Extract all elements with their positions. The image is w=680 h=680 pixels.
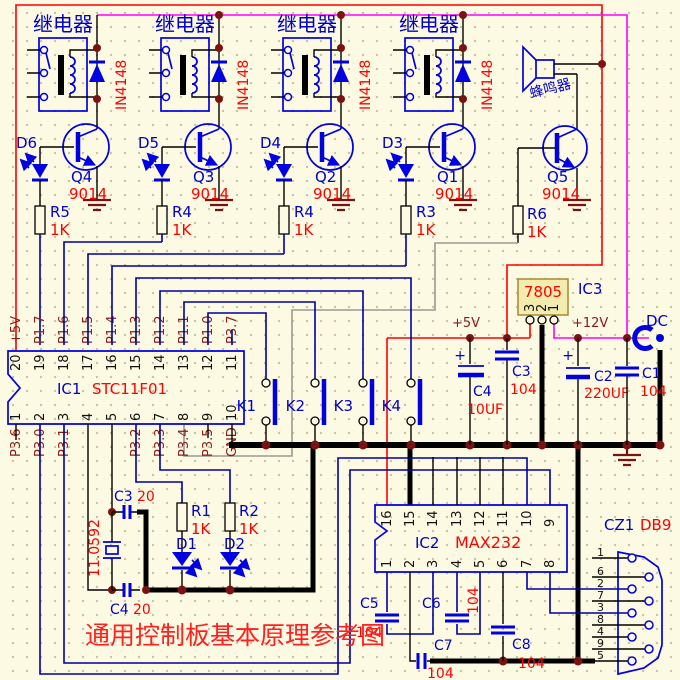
flyback-diode-3 (333, 62, 349, 82)
svg-text:Q2: Q2 (315, 168, 336, 186)
svg-text:104: 104 (466, 587, 482, 614)
svg-text:12: 12 (473, 510, 488, 527)
svg-text:1K: 1K (527, 223, 548, 241)
schematic-drawing: 继电器 IN4148 D6 Q4 9014 R5 1K 继电器 IN4148 D… (0, 0, 680, 680)
svg-text:1K: 1K (50, 221, 71, 239)
led-d4 (266, 155, 292, 180)
svg-text:9014: 9014 (542, 185, 580, 203)
svg-text:220UF: 220UF (584, 386, 629, 402)
svg-text:12: 12 (201, 354, 216, 371)
svg-text:20: 20 (9, 354, 24, 371)
svg-text:C4: C4 (473, 384, 492, 400)
svg-text:3: 3 (57, 413, 72, 421)
svg-text:9: 9 (201, 413, 216, 421)
resistor-r4b (279, 206, 289, 234)
svg-text:IN4148: IN4148 (236, 60, 252, 110)
svg-text:R5: R5 (50, 203, 70, 221)
svg-text:K3: K3 (334, 397, 353, 415)
crystal (103, 542, 121, 558)
button-k3: K3 (334, 379, 372, 445)
svg-text:C4: C4 (110, 602, 129, 618)
svg-text:+: + (454, 348, 466, 364)
resistor-r5 (35, 206, 45, 234)
svg-text:7: 7 (153, 413, 168, 421)
svg-text:16: 16 (380, 510, 395, 527)
relay-channel-2: 继电器 IN4148 D5 Q3 9014 R4 1K (138, 11, 252, 242)
svg-text:D2: D2 (224, 535, 245, 553)
svg-text:R6: R6 (527, 205, 547, 223)
svg-text:D4: D4 (260, 134, 281, 152)
resistor-r4a (157, 206, 167, 234)
relay-channel-1: 继电器 IN4148 D6 Q4 9014 R5 1K (16, 12, 130, 345)
svg-text:9014: 9014 (435, 185, 473, 203)
svg-text:11: 11 (225, 354, 240, 371)
svg-text:5: 5 (105, 413, 120, 421)
svg-text:8: 8 (177, 413, 192, 421)
svg-text:继电器: 继电器 (277, 12, 337, 36)
svg-text:7: 7 (520, 560, 535, 568)
svg-text:1K: 1K (172, 221, 193, 239)
flyback-diode-1 (89, 62, 105, 82)
svg-text:C8: C8 (512, 637, 531, 653)
svg-text:C3: C3 (512, 364, 531, 380)
schematic-title: 通用控制板基本原理参考图 (85, 621, 385, 650)
svg-text:C7: C7 (434, 638, 453, 654)
svg-text:D5: D5 (138, 134, 159, 152)
ic2-part: MAX232 (455, 533, 521, 552)
svg-text:Q1: Q1 (437, 168, 458, 186)
relay-label: 继电器 (33, 12, 93, 36)
svg-text:18: 18 (57, 354, 72, 371)
ic2-ref: IC2 (415, 534, 439, 552)
svg-text:D3: D3 (382, 134, 403, 152)
reg-ref: IC3 (578, 280, 602, 298)
cap-xc3 (124, 505, 130, 519)
svg-text:Q3: Q3 (193, 168, 214, 186)
svg-text:9: 9 (543, 519, 558, 527)
cap-c2-220uf: + C2 220UF (562, 338, 629, 445)
svg-text:2: 2 (403, 560, 418, 568)
cap-c8: C8 104 (491, 572, 545, 672)
svg-text:P1.7: P1.7 (33, 315, 48, 344)
flyback-diode-2 (211, 62, 227, 82)
svg-text:1: 1 (9, 413, 24, 421)
svg-text:C1: C1 (642, 366, 661, 382)
svg-text:15: 15 (129, 354, 144, 371)
svg-text:K4: K4 (382, 397, 401, 415)
led-d3 (388, 155, 414, 180)
svg-text:9014: 9014 (191, 185, 229, 203)
svg-text:D1: D1 (176, 535, 197, 553)
relay-channel-4: 继电器 IN4148 D3 Q1 9014 R3 1K (382, 11, 496, 266)
max232-ic2: IC2 MAX232 16 15 14 13 12 11 10 9 1 2 3 … (375, 457, 567, 572)
svg-text:17: 17 (81, 354, 96, 371)
resistor-r3 (401, 206, 411, 234)
schematic-sheet: 继电器 IN4148 D6 Q4 9014 R5 1K 继电器 IN4148 D… (0, 0, 680, 680)
flyback-diode-4 (455, 62, 471, 82)
svg-text:Q5: Q5 (547, 168, 568, 186)
svg-text:8: 8 (543, 560, 558, 568)
svg-text:+5V: +5V (9, 316, 24, 344)
svg-text:3: 3 (426, 560, 441, 568)
svg-text:R3: R3 (416, 203, 436, 221)
svg-text:14: 14 (153, 354, 168, 371)
plus5v-label: +5V (452, 316, 480, 331)
svg-text:C5: C5 (360, 596, 379, 612)
svg-text:20: 20 (133, 602, 151, 618)
cap-xc4 (124, 583, 130, 597)
svg-text:9014: 9014 (313, 185, 351, 203)
dc-label: DC (646, 312, 668, 330)
dc-jack: DC (635, 312, 668, 349)
led-d1 (172, 552, 200, 575)
reg-part: 7805 (524, 283, 562, 301)
svg-text:1K: 1K (416, 221, 437, 239)
svg-text:4: 4 (81, 413, 96, 421)
ic1-ref: IC1 (57, 380, 81, 398)
svg-text:K2: K2 (286, 397, 305, 415)
led-d6 (22, 155, 48, 180)
cap-c6: C6 104 (422, 572, 482, 634)
svg-text:15: 15 (403, 510, 418, 527)
cap-c3-104: C3 104 (495, 338, 537, 445)
diode-label: IN4148 (114, 60, 130, 110)
resistor-r2 (225, 503, 235, 531)
plus12v-label: +12V (572, 316, 608, 331)
svg-text:C6: C6 (422, 596, 441, 612)
resistor-r6 (513, 206, 523, 234)
svg-text:R1: R1 (191, 502, 211, 520)
svg-text:19: 19 (33, 354, 48, 371)
svg-text:14: 14 (426, 510, 441, 527)
svg-text:9014: 9014 (69, 185, 107, 203)
cap-c7: C7 104 (410, 572, 454, 680)
svg-text:R4: R4 (294, 203, 314, 221)
ic1-part: STC11F01 (92, 380, 167, 398)
svg-text:104: 104 (510, 382, 537, 398)
svg-text:IN4148: IN4148 (480, 60, 496, 110)
svg-text:IN4148: IN4148 (358, 60, 374, 110)
svg-text:+: + (562, 348, 574, 364)
svg-text:13: 13 (177, 354, 192, 371)
svg-text:104: 104 (640, 384, 667, 400)
svg-text:D6: D6 (16, 134, 37, 152)
svg-text:C2: C2 (594, 369, 613, 385)
button-k1: K1 (237, 379, 275, 445)
db9-connector: CZ1 DB9 1 6 2 7 3 8 4 9 5 (592, 516, 671, 674)
svg-text:1: 1 (547, 304, 562, 312)
cap-c4-10uf: + C4 10UF (454, 338, 503, 445)
led-d5 (144, 155, 170, 180)
svg-text:1: 1 (597, 546, 604, 559)
svg-text:4: 4 (450, 560, 465, 568)
svg-text:11: 11 (496, 510, 511, 527)
db9-ref: CZ1 (604, 516, 634, 534)
svg-text:R4: R4 (172, 203, 192, 221)
svg-text:继电器: 继电器 (399, 12, 459, 36)
svg-text:Q4: Q4 (71, 168, 92, 186)
led-d2 (220, 552, 248, 575)
svg-text:1K: 1K (294, 221, 315, 239)
db9-part: DB9 (640, 516, 671, 534)
relay-channel-3: 继电器 IN4148 D4 Q2 9014 R4 1K (260, 11, 374, 254)
svg-text:K1: K1 (237, 397, 256, 415)
svg-text:5: 5 (473, 560, 488, 568)
svg-text:继电器: 继电器 (155, 12, 215, 36)
svg-text:1: 1 (380, 560, 395, 568)
svg-text:R2: R2 (239, 502, 259, 520)
svg-text:20: 20 (137, 489, 155, 505)
svg-text:C3: C3 (114, 489, 133, 505)
svg-text:2: 2 (33, 413, 48, 421)
svg-text:16: 16 (105, 354, 120, 371)
svg-text:104: 104 (518, 656, 545, 672)
svg-text:6: 6 (129, 413, 144, 421)
svg-text:13: 13 (450, 510, 465, 527)
resistor-r1 (177, 503, 187, 531)
svg-text:104: 104 (427, 666, 454, 680)
svg-text:10: 10 (520, 510, 535, 527)
crystal-value: 11.0592 (87, 519, 103, 577)
svg-text:6: 6 (496, 560, 511, 568)
svg-text:P3.4: P3.4 (177, 428, 192, 457)
svg-text:5: 5 (597, 649, 604, 662)
svg-text:10UF: 10UF (467, 402, 503, 418)
